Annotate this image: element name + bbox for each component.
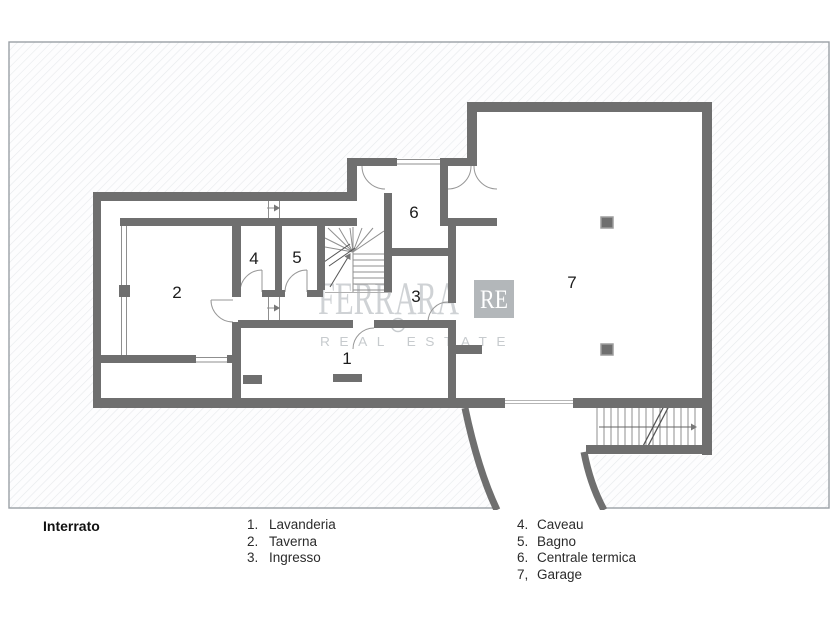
floorplan-svg: FERRARA RE REAL ESTATE (0, 0, 840, 510)
room-label-centrale-termica: 6 (409, 203, 418, 222)
legend-column-2: 4. Caveau 5. Bagno 6. Centrale termica 7… (517, 517, 636, 583)
watermark-tagline: REAL ESTATE (320, 334, 515, 349)
floor-title: Interrato (43, 518, 100, 535)
room-label-lavanderia: 1 (342, 349, 351, 368)
floorplan-canvas: FERRARA RE REAL ESTATE (0, 0, 840, 510)
legend-item: 1. Lavanderia (247, 517, 336, 534)
legend-item: 6. Centrale termica (517, 550, 636, 567)
watermark: FERRARA RE REAL ESTATE (318, 273, 515, 349)
room-label-ingresso: 3 (411, 287, 420, 306)
legend-item: 2. Taverna (247, 534, 336, 551)
room-label-bagno: 5 (292, 248, 301, 267)
room-label-caveau: 4 (249, 249, 258, 268)
legend-item: 5. Bagno (517, 534, 636, 551)
legend-item: 3. Ingresso (247, 550, 336, 567)
legend-item: 4. Caveau (517, 517, 636, 534)
room-label-taverna: 2 (172, 283, 181, 302)
legend-item: 7, Garage (517, 567, 636, 584)
room-label-garage: 7 (567, 273, 576, 292)
legend-column-1: 1. Lavanderia 2. Taverna 3. Ingresso (247, 517, 336, 567)
floorplan-page: { "plan": { "rooms": [ {"number": "1", "… (0, 0, 840, 630)
watermark-badge-text: RE (480, 285, 508, 314)
